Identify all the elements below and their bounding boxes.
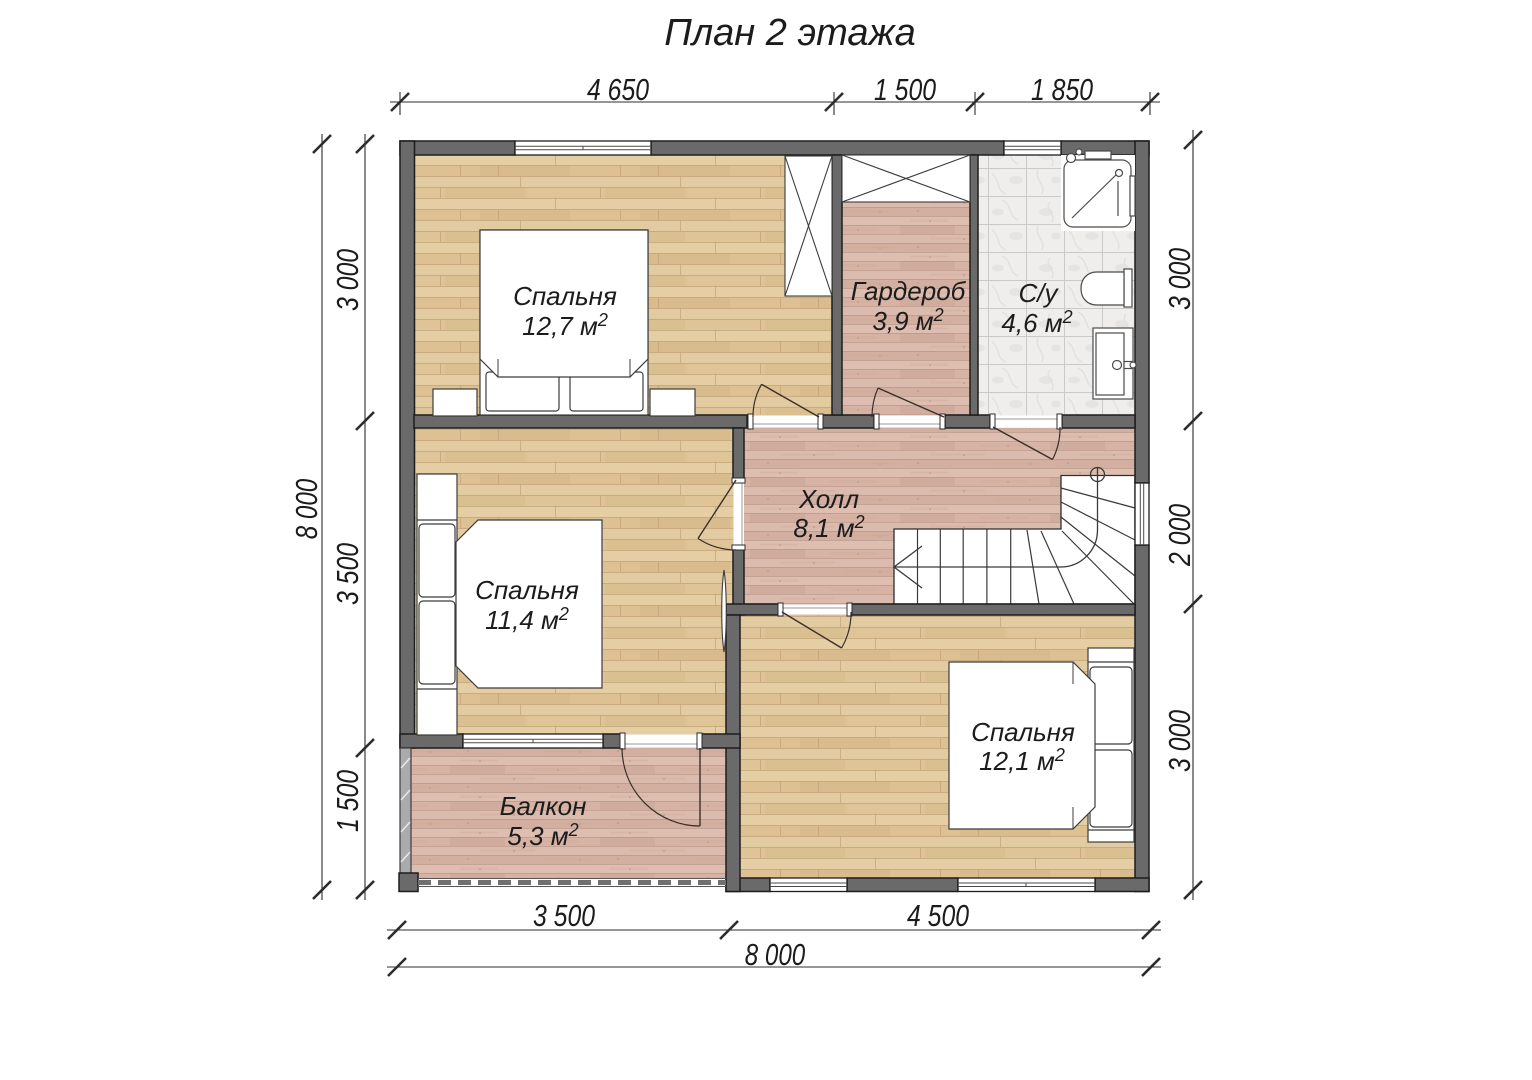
- svg-text:5,3 м2: 5,3 м2: [507, 820, 578, 851]
- svg-text:12,1 м2: 12,1 м2: [979, 745, 1065, 776]
- svg-text:2 000: 2 000: [1162, 504, 1196, 567]
- svg-text:11,4 м2: 11,4 м2: [485, 604, 569, 635]
- svg-text:3 500: 3 500: [330, 543, 364, 605]
- svg-text:Балкон: Балкон: [500, 791, 587, 821]
- svg-text:1 500: 1 500: [874, 72, 936, 106]
- svg-text:3 000: 3 000: [1162, 710, 1196, 772]
- svg-text:1 500: 1 500: [330, 770, 364, 832]
- svg-text:С/у: С/у: [1019, 278, 1060, 308]
- svg-text:1 850: 1 850: [1031, 72, 1093, 106]
- svg-text:Спальня: Спальня: [971, 717, 1075, 747]
- svg-text:4 650: 4 650: [587, 72, 649, 106]
- svg-text:3 500: 3 500: [533, 898, 595, 932]
- svg-text:3 000: 3 000: [1162, 248, 1196, 310]
- svg-text:8,1 м2: 8,1 м2: [793, 512, 864, 543]
- svg-text:Гардероб: Гардероб: [851, 276, 967, 306]
- svg-text:12,7 м2: 12,7 м2: [522, 310, 608, 341]
- svg-text:3 000: 3 000: [330, 249, 364, 311]
- svg-text:4 500: 4 500: [907, 898, 969, 932]
- svg-text:3,9 м2: 3,9 м2: [872, 305, 943, 336]
- svg-text:Холл: Холл: [798, 484, 859, 514]
- svg-text:8 000: 8 000: [745, 937, 806, 972]
- svg-text:Спальня: Спальня: [513, 281, 617, 311]
- svg-text:План 2 этажа: План 2 этажа: [664, 12, 916, 54]
- svg-text:4,6 м2: 4,6 м2: [1001, 307, 1072, 338]
- svg-text:8 000: 8 000: [289, 478, 324, 539]
- svg-text:Спальня: Спальня: [475, 575, 579, 605]
